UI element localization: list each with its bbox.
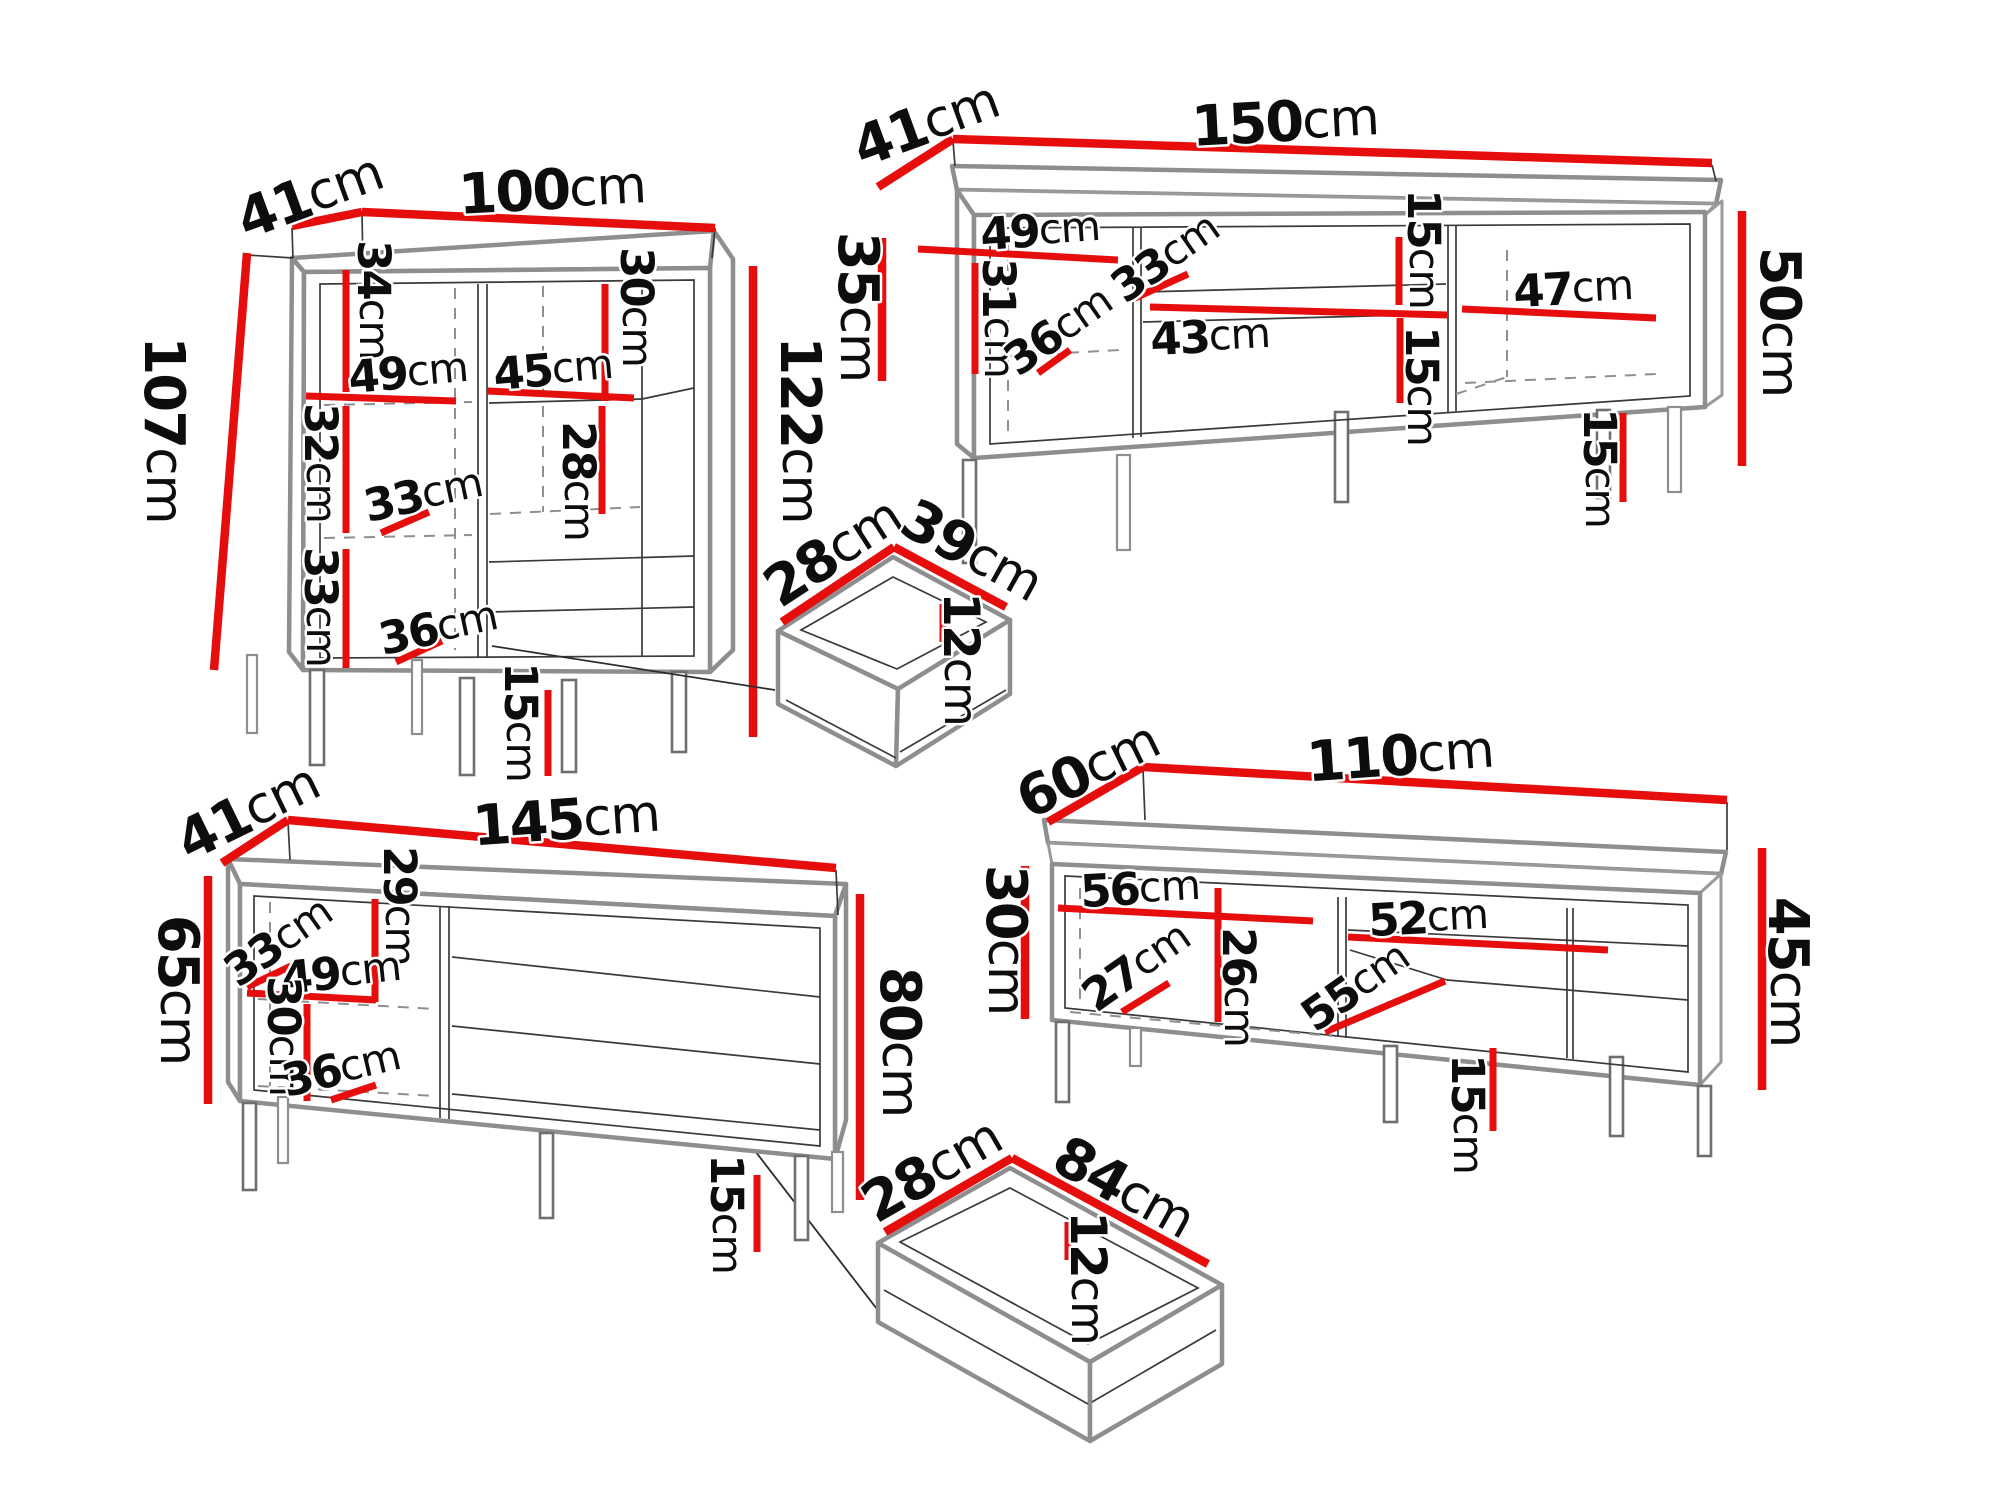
dim-label-height-80: 80cm <box>868 967 933 1117</box>
diagram-canvas: 41cm 100cm 107cm 122cm 34cm 30cm 49cm 45… <box>0 0 2000 1499</box>
dim-label-height-50: 50cm <box>1748 247 1813 397</box>
dim-label-30: 30cm <box>611 247 664 367</box>
dim-label-height-122: 122cm <box>768 336 833 523</box>
dim-label-34: 34cm <box>348 240 401 360</box>
dim-label-47: 47cm <box>1512 258 1634 317</box>
dim-label-15-lower: 15cm <box>1396 326 1449 446</box>
dim-label-12: 12cm <box>932 592 990 726</box>
piece-tv-stand-150: 41cm 150cm 35cm 50cm 49cm 31cm 36cm 33cm… <box>826 68 1813 563</box>
dim-label-35: 35cm <box>826 232 891 382</box>
dim-label-leg-15: 15cm <box>495 662 548 782</box>
dim-label-12: 12cm <box>1059 1211 1117 1345</box>
dim-label-15-upper: 15cm <box>1398 189 1451 309</box>
dim-label-56: 56cm <box>1079 858 1201 917</box>
piece-drawer-84: 28cm 84cm 12cm <box>851 1104 1222 1441</box>
piece-tv-stand-110: 60cm 110cm 30cm 45cm 56cm 27cm 26cm 52cm… <box>974 708 1821 1174</box>
dim-label-height-45: 45cm <box>1756 897 1821 1047</box>
piece-sideboard-145: 41cm 145cm 65cm 80cm 29cm 33cm 49cm 30cm… <box>146 750 933 1326</box>
dim-label-leg-15: 15cm <box>1574 408 1627 528</box>
dim-label-width-150: 150cm <box>1190 85 1381 160</box>
dim-label-leg-15: 15cm <box>1442 1054 1495 1174</box>
dim-label-43: 43cm <box>1149 306 1271 365</box>
dim-label-depth-41: 41cm <box>166 750 330 874</box>
dim-label-depth-41: 41cm <box>228 140 392 253</box>
dim-label-28: 28cm <box>553 421 606 541</box>
dim-label-depth-41: 41cm <box>844 68 1008 181</box>
dim-label-height-107: 107cm <box>132 336 197 523</box>
dim-label-leg-15: 15cm <box>701 1154 754 1274</box>
piece-highboard-100: 41cm 100cm 107cm 122cm 34cm 30cm 49cm 45… <box>132 140 833 782</box>
dim-label-width-100: 100cm <box>457 153 648 228</box>
furniture-dimension-diagram: 41cm 100cm 107cm 122cm 34cm 30cm 49cm 45… <box>0 0 2000 1499</box>
dim-label-65: 65cm <box>146 915 211 1065</box>
dim-label-26: 26cm <box>1213 927 1266 1047</box>
dim-label-33b: 33cm <box>295 547 348 667</box>
dim-label-32: 32cm <box>295 403 348 523</box>
dim-label-30: 30cm <box>974 865 1039 1015</box>
